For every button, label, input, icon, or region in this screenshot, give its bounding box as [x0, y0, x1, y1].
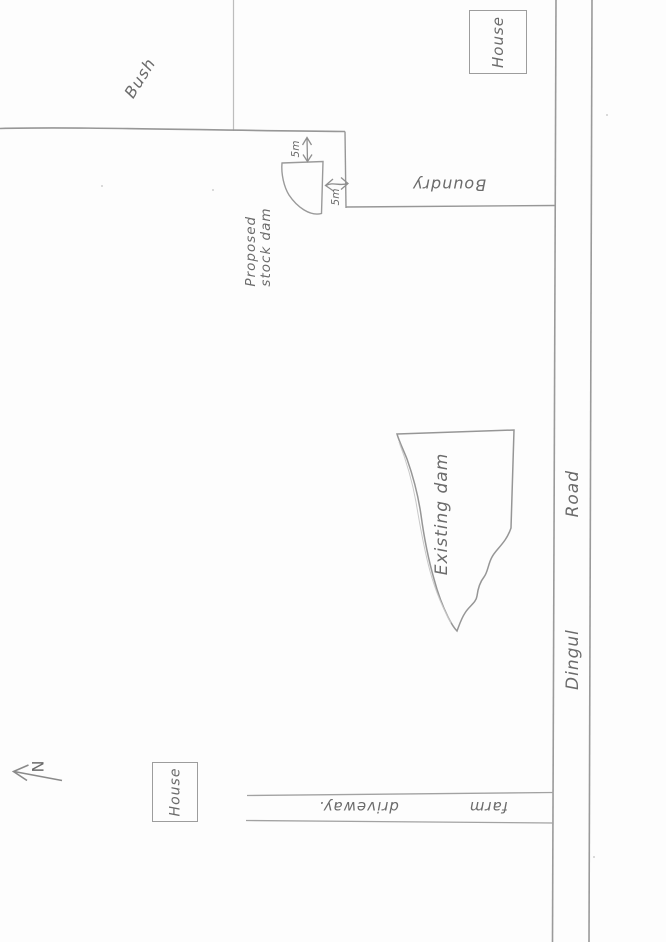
boundary-step-line — [345, 132, 346, 209]
driveway-label-word2: driveway. — [318, 798, 399, 816]
road-edge-left — [553, 0, 557, 942]
driveway-edge-bottom — [246, 821, 553, 824]
house-top-right-label: House — [489, 16, 507, 68]
driveway-label: farm driveway. — [318, 798, 508, 816]
road-edge-right — [589, 0, 592, 942]
pencil-specks — [101, 114, 608, 858]
boundary-line-west — [0, 128, 345, 132]
driveway-edge-top — [247, 793, 554, 796]
scanned-sketch-page: House Bush Proposed stock dam 5m 5m Boun… — [0, 0, 666, 942]
setback-side-label: 5m — [330, 189, 342, 206]
road-name-word1: Dingul — [563, 629, 583, 690]
house-top-right: House — [469, 10, 527, 74]
house-bottom-left: House — [152, 762, 198, 822]
proposed-dam-label-line1: Proposed — [244, 207, 259, 286]
setback-top-label: 5m — [290, 141, 302, 158]
proposed-dam-outline — [282, 162, 323, 215]
road-name-word2: Road — [563, 470, 583, 517]
north-label: N — [29, 760, 48, 773]
driveway-label-word1: farm — [469, 798, 508, 816]
existing-dam-label: Existing dam — [432, 453, 452, 576]
boundary-line-north — [346, 206, 555, 208]
proposed-dam-label: Proposed stock dam — [244, 207, 274, 286]
dimension-arrow-vertical — [303, 138, 313, 162]
road-name: Dingul Road — [563, 470, 583, 690]
house-bottom-left-label: House — [167, 768, 183, 817]
boundary-label: Boundry — [412, 176, 486, 195]
existing-dam-outline — [397, 430, 514, 631]
proposed-dam-label-line2: stock dam — [259, 207, 274, 286]
